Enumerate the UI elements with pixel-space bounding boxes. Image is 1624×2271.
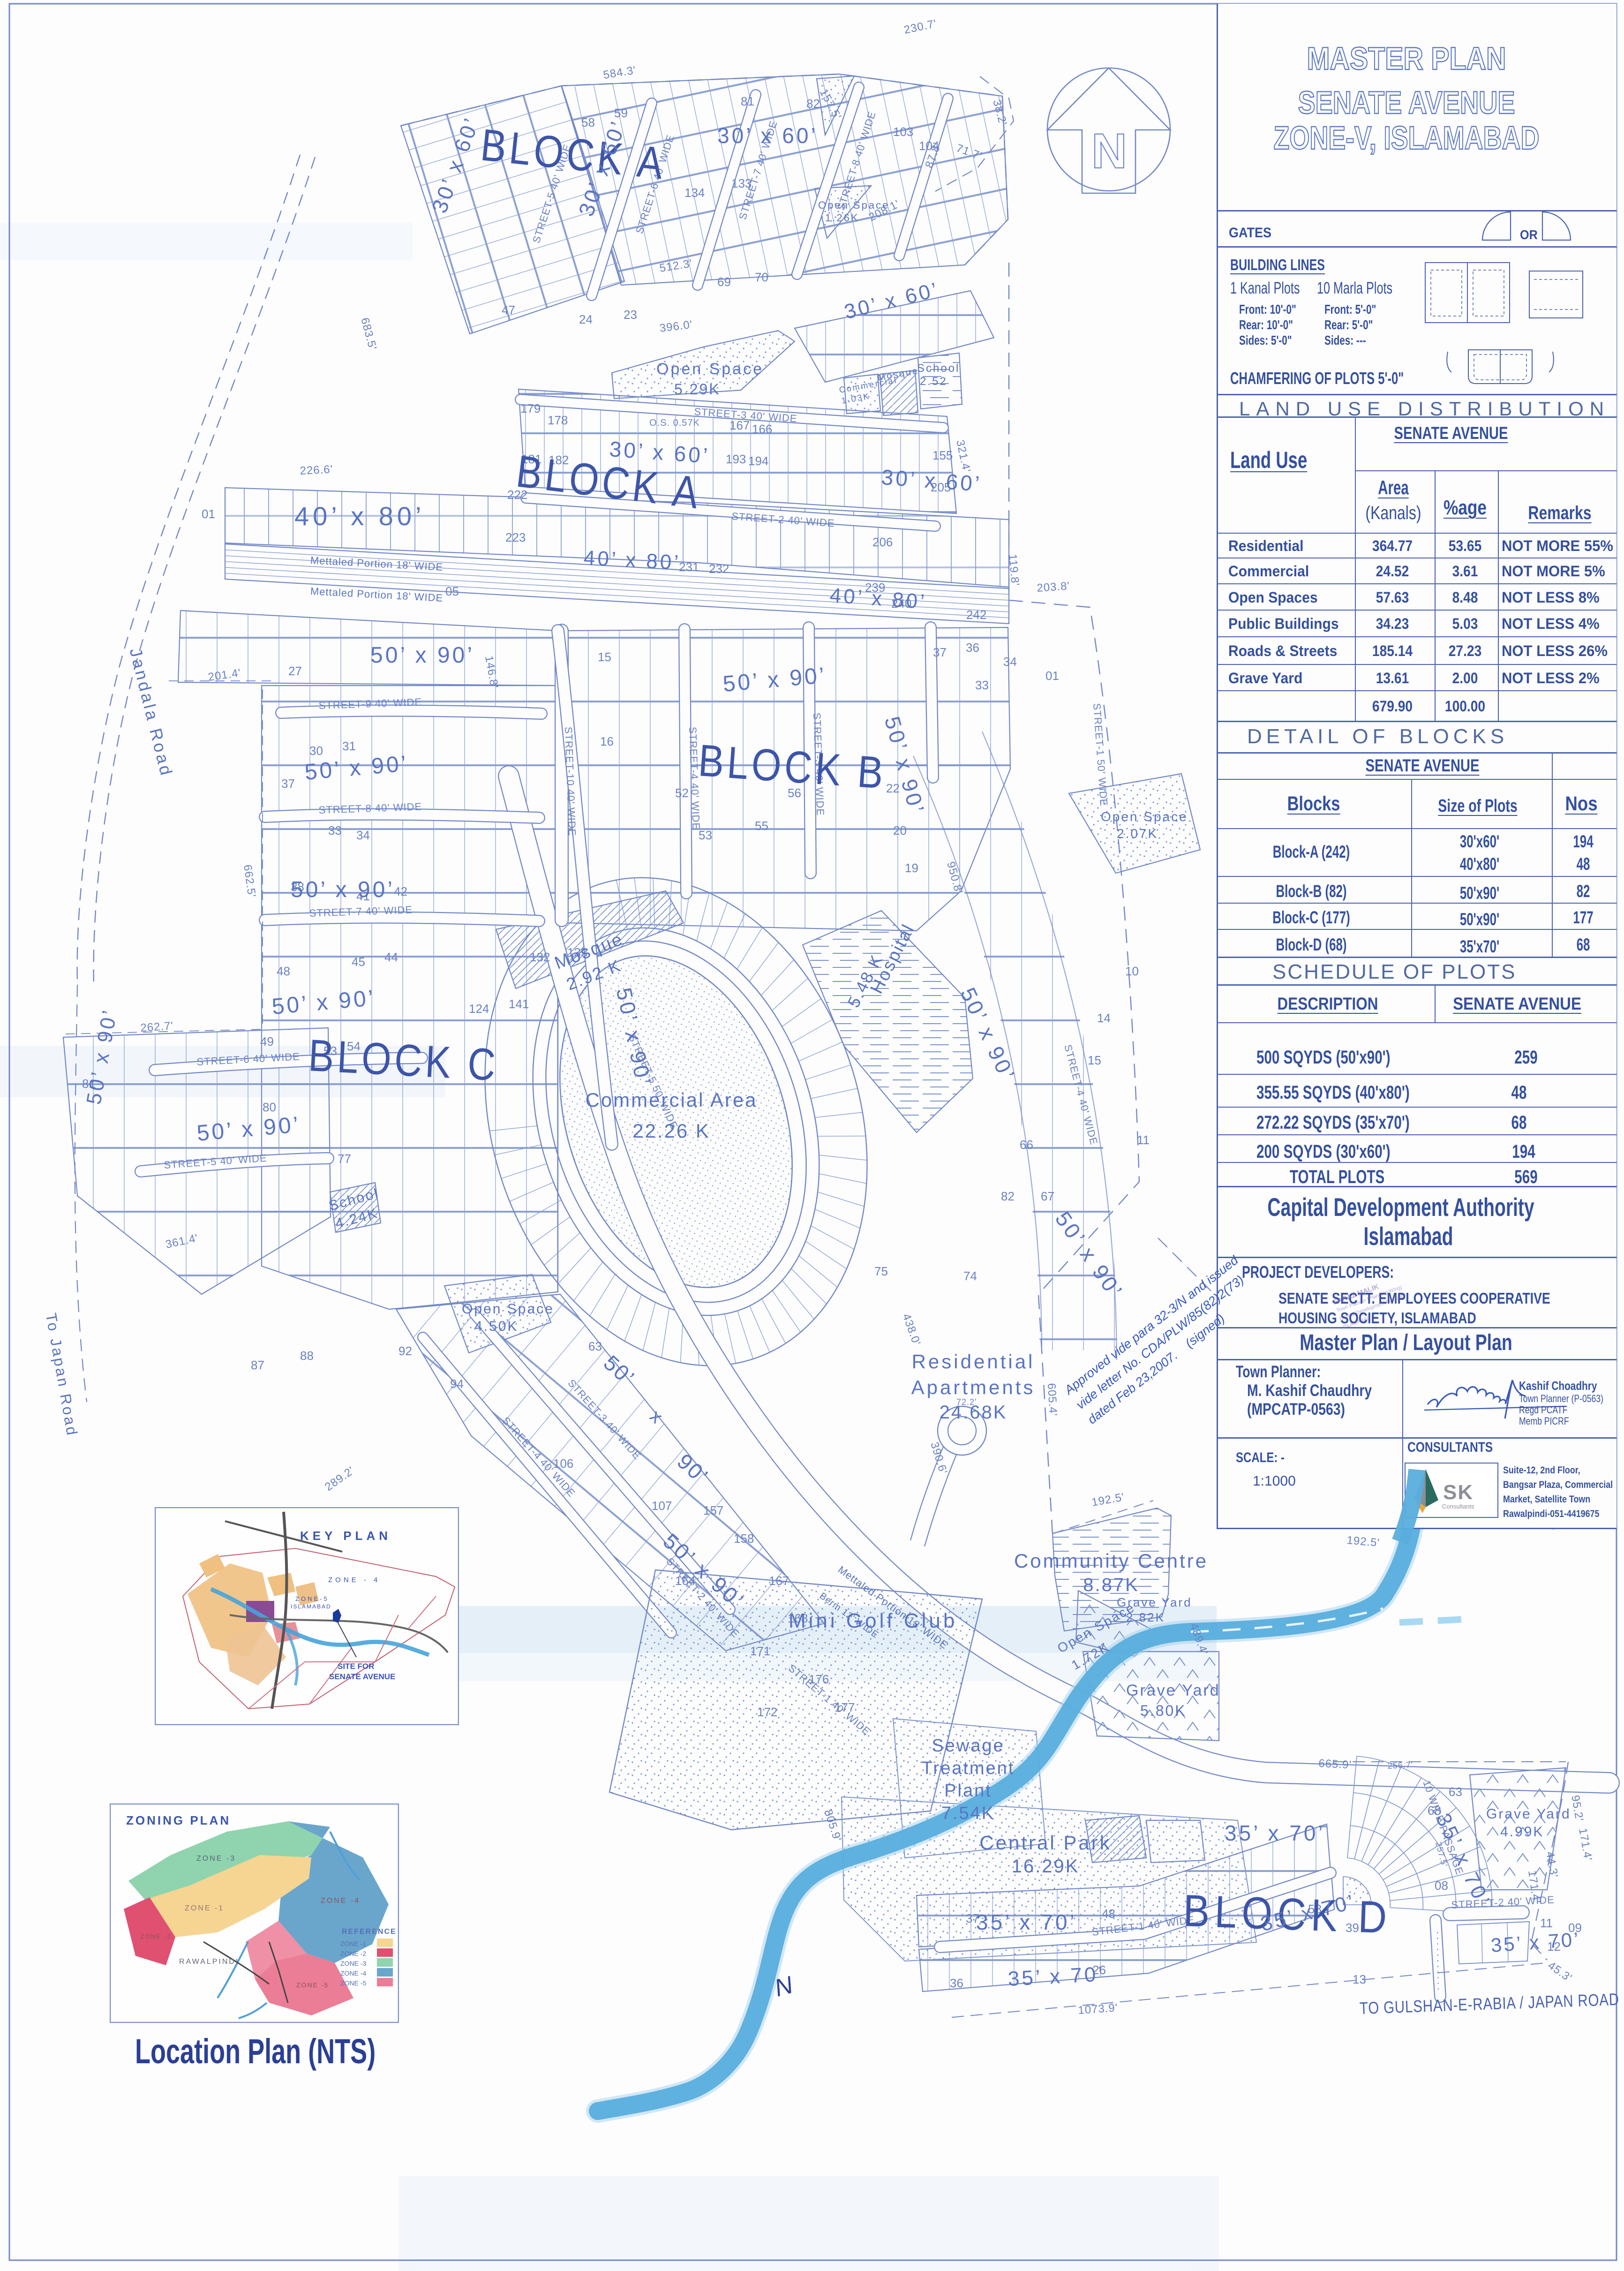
svg-text:36: 36 <box>950 1976 963 1990</box>
svg-text:67: 67 <box>1041 1189 1054 1203</box>
svg-text:SENATE AVENUE: SENATE AVENUE <box>329 1672 395 1681</box>
svg-text:192.5': 192.5' <box>1346 1534 1380 1549</box>
svg-text:19: 19 <box>905 861 918 875</box>
svg-text:ZONE-5: ZONE-5 <box>295 1595 329 1602</box>
svg-text:74: 74 <box>963 1269 977 1283</box>
svg-text:36: 36 <box>966 641 979 655</box>
svg-text:94: 94 <box>450 1377 464 1391</box>
svg-text:683.5': 683.5' <box>358 317 379 352</box>
svg-text:242: 242 <box>966 608 986 622</box>
svg-text:ZONE -3: ZONE -3 <box>340 1960 366 1967</box>
svg-text:34: 34 <box>1003 655 1017 669</box>
svg-text:396.0': 396.0' <box>659 318 693 335</box>
svg-text:194: 194 <box>748 454 768 468</box>
svg-text:49: 49 <box>260 1034 274 1049</box>
svg-text:262.7': 262.7' <box>140 1019 174 1034</box>
svg-text:178: 178 <box>548 413 568 427</box>
svg-text:82: 82 <box>1001 1189 1015 1203</box>
svg-text:77: 77 <box>338 1152 351 1166</box>
svg-text:584.3': 584.3' <box>602 64 637 82</box>
svg-text:52: 52 <box>675 786 689 800</box>
svg-text:44: 44 <box>384 950 398 964</box>
svg-text:226.6': 226.6' <box>300 463 333 477</box>
svg-text:231: 231 <box>679 560 699 574</box>
svg-text:171.4': 171.4' <box>1576 1827 1594 1862</box>
svg-text:179: 179 <box>520 401 541 415</box>
svg-text:37: 37 <box>933 645 947 659</box>
svg-text:11: 11 <box>1137 1133 1150 1147</box>
svg-text:ZONE -1: ZONE -1 <box>185 1904 224 1912</box>
svg-text:37: 37 <box>281 777 295 791</box>
svg-text:171: 171 <box>750 1644 770 1658</box>
svg-text:SK: SK <box>1443 1481 1474 1504</box>
svg-text:203.8': 203.8' <box>1037 580 1070 595</box>
svg-text:63: 63 <box>588 1339 602 1353</box>
svg-text:ZONE -4: ZONE -4 <box>340 1969 366 1977</box>
svg-text:ZONE -2: ZONE -2 <box>340 1950 366 1957</box>
svg-text:48: 48 <box>1102 1907 1115 1921</box>
svg-text:05: 05 <box>445 584 459 598</box>
svg-text:01: 01 <box>202 507 215 521</box>
svg-text:141: 141 <box>509 997 529 1011</box>
svg-text:ZONE -5: ZONE -5 <box>296 1981 329 1989</box>
svg-text:REFERENCE: REFERENCE <box>342 1928 397 1936</box>
svg-text:45.3': 45.3' <box>1546 1959 1575 1984</box>
svg-text:321.4': 321.4' <box>954 439 973 474</box>
svg-text:59: 59 <box>614 106 628 120</box>
svg-text:45: 45 <box>352 955 365 969</box>
svg-text:14: 14 <box>1097 1011 1111 1025</box>
svg-text:438.0': 438.0' <box>900 1312 923 1348</box>
svg-text:289.2': 289.2' <box>323 1464 357 1494</box>
svg-text:53: 53 <box>699 828 712 842</box>
svg-text:58: 58 <box>581 115 595 129</box>
svg-text:24: 24 <box>579 312 593 326</box>
svg-text:33: 33 <box>975 678 989 692</box>
svg-text:48: 48 <box>277 964 290 978</box>
svg-text:167: 167 <box>769 1574 789 1588</box>
svg-text:124: 124 <box>469 1002 489 1016</box>
svg-text:232: 232 <box>709 562 729 576</box>
svg-text:30: 30 <box>309 744 323 758</box>
svg-text:662.5': 662.5' <box>241 864 258 898</box>
svg-text:N: N <box>1091 124 1127 179</box>
svg-text:ZONE -5: ZONE -5 <box>340 1979 366 1987</box>
svg-text:69: 69 <box>717 275 731 289</box>
svg-text:157: 157 <box>703 1503 723 1517</box>
svg-text:206: 206 <box>872 535 893 549</box>
svg-text:256.7': 256.7' <box>1387 1760 1413 1771</box>
svg-text:KEY PLAN: KEY PLAN <box>300 1529 391 1543</box>
svg-text:193: 193 <box>726 452 746 466</box>
svg-text:87: 87 <box>251 1358 264 1372</box>
svg-text:95.2': 95.2' <box>1569 1794 1586 1822</box>
svg-text:MASTER PLAN: MASTER PLAN <box>1307 41 1506 76</box>
svg-text:103: 103 <box>893 125 913 139</box>
svg-text:75: 75 <box>874 1264 888 1278</box>
svg-text:70: 70 <box>755 270 768 284</box>
svg-text:132: 132 <box>530 950 550 964</box>
svg-text:223: 223 <box>505 530 526 544</box>
svg-text:ZONE-V, ISLAMABAD: ZONE-V, ISLAMABAD <box>1274 120 1540 156</box>
svg-text:192.5': 192.5' <box>1090 1491 1125 1509</box>
svg-text:155: 155 <box>932 448 953 462</box>
svg-text:1073.9': 1073.9' <box>1078 2001 1119 2017</box>
svg-text:63: 63 <box>1449 1785 1462 1799</box>
svg-text:08: 08 <box>1435 1879 1448 1893</box>
svg-text:Consultants: Consultants <box>1442 1503 1474 1510</box>
svg-text:10: 10 <box>1125 964 1139 978</box>
svg-text:66: 66 <box>1020 1138 1033 1152</box>
svg-text:107: 107 <box>652 1499 672 1513</box>
svg-text:88: 88 <box>300 1349 314 1363</box>
svg-text:13: 13 <box>1353 1972 1366 1986</box>
svg-text:80: 80 <box>263 1100 276 1114</box>
svg-text:42: 42 <box>394 884 407 898</box>
svg-text:20: 20 <box>893 823 907 837</box>
svg-text:134: 134 <box>684 186 705 200</box>
svg-text:172: 172 <box>757 1705 777 1719</box>
svg-text:O.S. 0.57K: O.S. 0.57K <box>649 418 700 428</box>
svg-text:ZONE -1: ZONE -1 <box>340 1940 366 1947</box>
svg-text:55: 55 <box>755 819 768 833</box>
svg-text:ISLAMABAD: ISLAMABAD <box>291 1603 331 1610</box>
svg-text:92: 92 <box>398 1344 412 1358</box>
svg-text:158: 158 <box>734 1532 754 1546</box>
svg-text:665.9': 665.9' <box>1318 1757 1352 1772</box>
svg-text:01: 01 <box>1045 669 1059 683</box>
svg-text:SENATE AVENUE: SENATE AVENUE <box>1298 85 1515 121</box>
svg-text:31: 31 <box>342 739 356 753</box>
svg-text:16: 16 <box>600 734 614 748</box>
svg-text:23: 23 <box>624 308 637 322</box>
svg-text:81: 81 <box>741 94 754 108</box>
svg-text:SITE FOR: SITE FOR <box>338 1662 374 1671</box>
svg-text:ZONE -2: ZONE -2 <box>141 1933 171 1940</box>
svg-text:ZONING PLAN: ZONING PLAN <box>126 1813 231 1827</box>
svg-text:RAWALPINDI: RAWALPINDI <box>179 1958 239 1966</box>
svg-text:27: 27 <box>288 664 302 678</box>
svg-text:15: 15 <box>598 650 611 664</box>
svg-text:34: 34 <box>356 828 370 842</box>
svg-text:ZONE -3: ZONE -3 <box>196 1855 236 1863</box>
svg-text:230.7': 230.7' <box>903 17 938 37</box>
svg-text:15: 15 <box>1088 1053 1101 1067</box>
svg-text:605.4': 605.4' <box>1045 1383 1060 1417</box>
svg-text:166: 166 <box>752 422 772 436</box>
svg-text:ZONE - 4: ZONE - 4 <box>328 1576 380 1584</box>
svg-text:11: 11 <box>1540 1916 1553 1930</box>
svg-text:82: 82 <box>806 97 820 111</box>
svg-text:104: 104 <box>919 139 939 153</box>
svg-text:ZONE -4: ZONE -4 <box>321 1897 360 1905</box>
svg-text:390.6': 390.6' <box>928 1441 949 1476</box>
svg-text:33: 33 <box>328 823 342 837</box>
svg-text:47: 47 <box>502 303 515 317</box>
